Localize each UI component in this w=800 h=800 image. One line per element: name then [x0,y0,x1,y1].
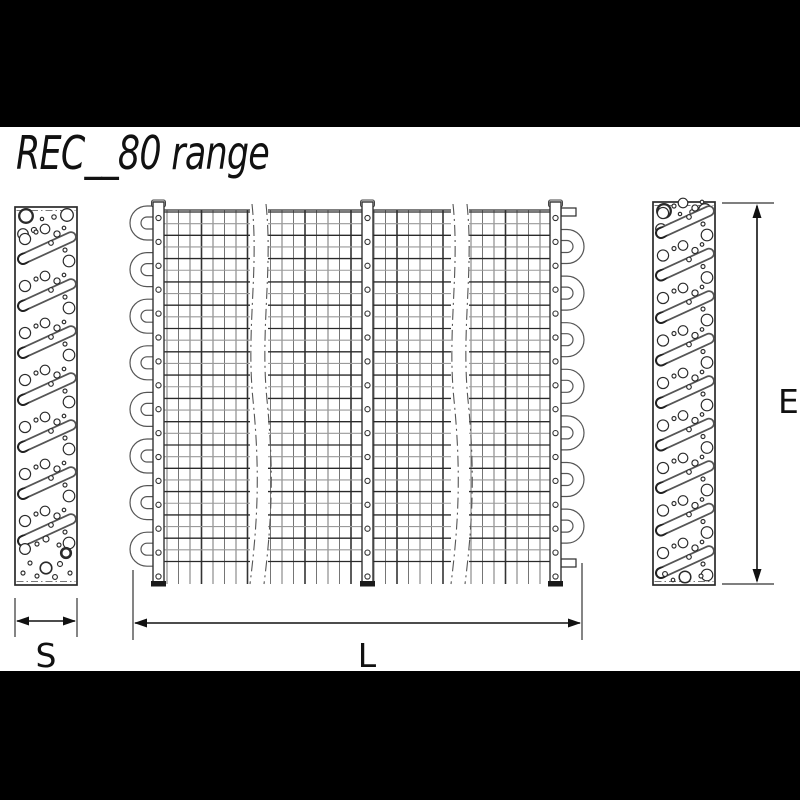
bottom-letterbox-band [0,671,800,800]
dimension-s-label: S [36,636,57,675]
coil-front-view [130,200,584,587]
dimension-e: E [722,203,799,584]
left-end-plate-view [15,207,77,585]
dimension-s: S [15,598,77,675]
page-title: REC__80 range [16,126,269,180]
right-end-plate-view [653,198,715,585]
arrowhead-right-icon [63,617,76,626]
datasheet-page: REC__80 range S L E [0,0,800,800]
arrowhead-down-icon [753,569,762,583]
arrowhead-left-icon [134,619,147,628]
dimension-l-label: L [358,636,377,675]
inlet-stub [561,208,576,216]
arrowhead-up-icon [753,204,762,218]
outlet-stub [561,559,576,567]
dimension-e-label: E [778,382,799,421]
coil-technical-drawing: REC__80 range S L E [0,0,800,800]
top-letterbox-band [0,0,800,127]
dimension-l: L [133,563,582,675]
arrowhead-right-icon [568,619,581,628]
arrowhead-left-icon [16,617,29,626]
